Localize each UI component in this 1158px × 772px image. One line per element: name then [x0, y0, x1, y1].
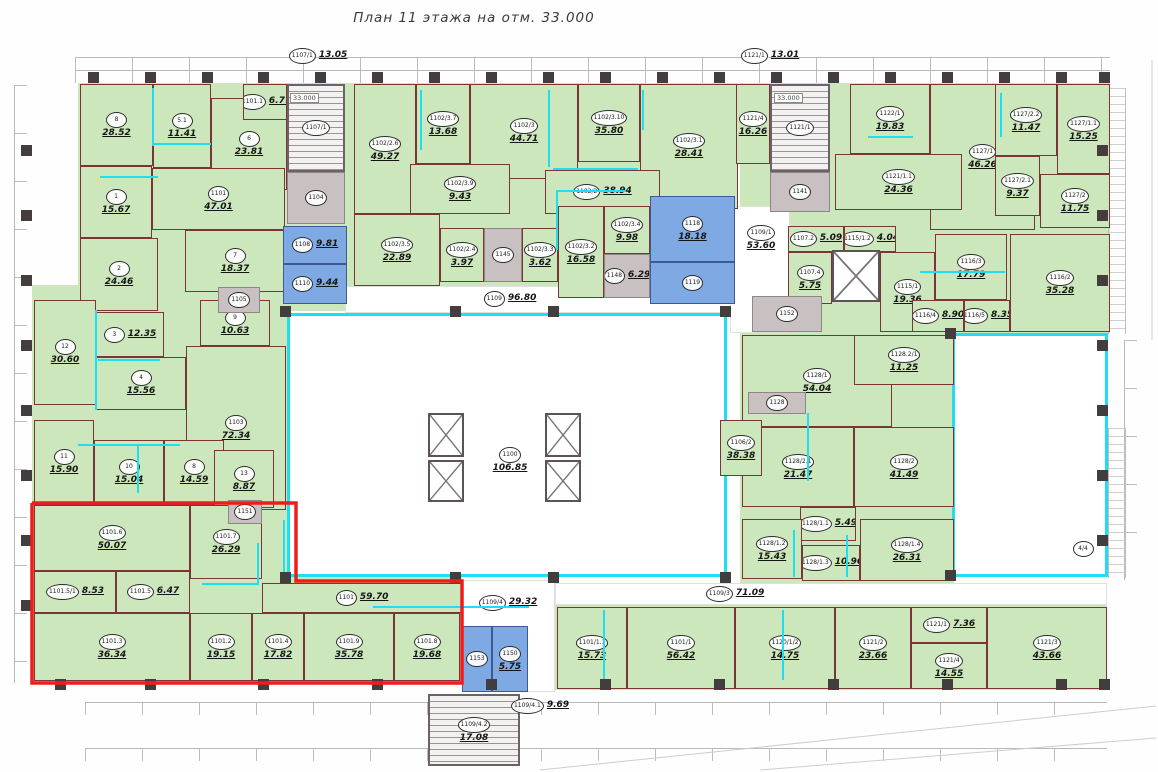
room-area-label: 14.59: [180, 476, 208, 486]
room-1116-3: 1116/3 17.79: [935, 234, 1007, 300]
room-number-badge: 1128/2: [890, 454, 917, 470]
room-area-label: 8.90: [942, 311, 964, 321]
room-area-label: 11.47: [1012, 124, 1040, 134]
room-area-label: 3.97: [451, 259, 473, 269]
partition-line: [153, 143, 211, 145]
room-number-badge: 1128: [766, 395, 787, 411]
room-area-label: 9.44: [316, 279, 338, 289]
room-area-label: 9.43: [449, 193, 471, 203]
elevator-shaft: [428, 460, 464, 502]
room-number-badge: 1101.7: [213, 529, 240, 545]
room-number-badge: 1120/1/2: [769, 635, 802, 651]
partition-line: [202, 583, 258, 585]
partition-line: [373, 606, 529, 608]
room-area-label: 24.46: [105, 278, 133, 288]
room-number-badge: 1102/3.10: [591, 110, 628, 126]
room-1109-3: 1109/3 71.09: [660, 583, 810, 605]
room-1119: 1119: [650, 262, 735, 304]
room-area-label: 72.34: [222, 432, 250, 442]
room-1102-3-10: 1102/3.10 35.80: [578, 84, 640, 162]
column-marker: [372, 72, 383, 83]
room-number-badge: 1102/3.9: [444, 176, 477, 192]
elevator-shaft: [545, 413, 581, 457]
room-number-badge: 1116/5: [964, 308, 988, 324]
room-area-label: 15.43: [758, 553, 786, 563]
room-number-badge: 1102/2: [573, 184, 600, 200]
column-marker: [429, 72, 440, 83]
room-area-label: 12.35: [128, 330, 156, 340]
room-area-label: 22.89: [383, 254, 411, 264]
column-marker: [258, 72, 269, 83]
partition-line: [420, 90, 422, 150]
room-8: 8 28.52: [80, 84, 153, 166]
partition-line: [1000, 93, 1002, 137]
room-number-badge: 1109/4: [479, 595, 506, 611]
partition-line: [642, 90, 644, 130]
room-area-label: 19.15: [207, 651, 235, 661]
room-1109-1: 1109/1 53.60: [732, 214, 790, 262]
column-marker: [1097, 470, 1108, 481]
room-area-label: 44.71: [510, 135, 538, 145]
room-1101-8: 1101.8 19.68: [394, 613, 460, 681]
room-1106-2: 1106/2 38.38: [720, 420, 762, 476]
room-number-badge: 1151: [234, 504, 255, 520]
room-number-badge: 8: [184, 459, 205, 475]
room-number-badge: 6: [239, 131, 260, 147]
room-area-label: 30.60: [51, 356, 79, 366]
column-marker: [945, 328, 956, 339]
partition-line: [603, 610, 605, 680]
column-marker: [657, 72, 668, 83]
room-area-label: 9.81: [316, 240, 338, 250]
room-number-badge: 8: [106, 112, 127, 128]
room-number-badge: 1102/3.3: [524, 242, 557, 258]
room-1102-3-9: 1102/3.9 9.43: [410, 164, 510, 214]
room-area-label: 14.55: [935, 670, 963, 680]
column-marker: [145, 72, 156, 83]
room-area-label: 14.75: [771, 652, 799, 662]
partition-line: [556, 190, 626, 192]
shaft-cross-icon: [834, 252, 878, 300]
room-area-label: 15.90: [50, 466, 78, 476]
room-number-badge: 1102/3.5: [381, 237, 414, 253]
room-number-badge: 4: [131, 370, 152, 386]
room-1121-1: 1121/1 13.01: [730, 44, 810, 68]
room-1109-4: 1109/4 29.32: [462, 583, 554, 623]
room-1107-1: 1107/1 13.05: [278, 44, 358, 68]
room-number-badge: 1121/1.1: [882, 169, 915, 185]
room-1101-1: 1101.1 6.77: [243, 84, 287, 120]
partition-line: [793, 530, 795, 577]
balcony-hatch-top-right: [1108, 88, 1126, 334]
room-number-badge: 1107/1: [302, 120, 329, 136]
column-marker: [202, 72, 213, 83]
room-number-badge: 1127/2: [1061, 188, 1088, 204]
column-marker: [1056, 72, 1067, 83]
room-area-label: 11.75: [1061, 205, 1089, 215]
room-number-badge: 1127/2.2: [1010, 107, 1043, 123]
room-area-label: 24.36: [884, 186, 912, 196]
column-marker: [21, 145, 32, 156]
room-number-badge: 1101.5/1: [46, 584, 79, 600]
shaft-cross-icon: [430, 415, 462, 455]
room-number-badge: 11: [54, 449, 75, 465]
column-marker: [88, 72, 99, 83]
room-area-label: 15.25: [1069, 133, 1097, 143]
column-marker: [942, 679, 953, 690]
room-1128-2: 1128/2 41.49: [854, 427, 954, 507]
room-1110: 1110 9.44: [283, 264, 347, 304]
room-area-label: 71.09: [736, 589, 764, 599]
room-1127-2-2: 1127/2.2 11.47: [995, 84, 1057, 156]
room-number-badge: 1108: [292, 237, 313, 253]
room-1102-2-6: 1102/2.6 49.27: [354, 84, 416, 214]
room-number-badge: 1128.2/1: [888, 347, 921, 363]
room-area-label: 43.66: [1033, 652, 1061, 662]
room-area-label: 13.05: [319, 51, 347, 61]
room-number-badge: 1127/1.1: [1067, 116, 1100, 132]
room-number-badge: 1101.5: [127, 584, 154, 600]
room-1102-3-3: 1102/3.3 3.62: [522, 228, 558, 282]
partition-line: [556, 190, 558, 250]
column-marker: [21, 210, 32, 221]
room-number-badge: 1103: [225, 415, 246, 431]
column-marker: [21, 535, 32, 546]
room-area-label: 26.29: [212, 546, 240, 556]
room-number-badge: 1145: [492, 247, 513, 263]
room-1108: 1108 9.81: [283, 226, 347, 264]
room-area-label: 16.26: [739, 128, 767, 138]
dimension-strip-bottom-2: [85, 748, 1107, 761]
room-number-badge: 1109/1: [747, 225, 774, 241]
room-area-label: 13.01: [771, 51, 799, 61]
room-1101-1-1: 1101/1.1 15.73: [557, 607, 627, 689]
room-number-badge: 1106/2: [727, 435, 754, 451]
room-number-badge: 1102/3.4: [611, 217, 644, 233]
room-area-label: 13.68: [429, 128, 457, 138]
room-number-badge: 1118: [682, 216, 703, 232]
room-number-badge: 13: [234, 466, 255, 482]
room-number-badge: 7: [225, 248, 246, 264]
elevator-shaft: [428, 413, 464, 457]
column-marker: [1097, 275, 1108, 286]
column-marker: [21, 275, 32, 286]
column-marker: [1097, 405, 1108, 416]
room-1101-9: 1101.9 35.78: [304, 613, 394, 681]
room-1101-3: 1101.3 36.34: [34, 613, 190, 681]
column-marker: [548, 306, 559, 317]
room-area-label: 50.07: [98, 542, 126, 552]
room-area-label: 6.77: [269, 97, 287, 107]
room-number-badge: 1102/3.2: [565, 239, 598, 255]
room-area-label: 5.75: [799, 282, 821, 292]
dimension-strip-left: [14, 85, 27, 683]
room-number-badge: 1102/3: [510, 118, 537, 134]
room-1116-5: 1116/5 8.35: [964, 300, 1010, 332]
room-area-label: 23.66: [859, 652, 887, 662]
room-number-badge: 1128/1.2: [756, 536, 789, 552]
room-area-label: 36.34: [98, 651, 126, 661]
room-area-label: 54.04: [803, 385, 831, 395]
room-4-4: 4/4: [1070, 538, 1096, 560]
room-area-label: 10.63: [221, 327, 249, 337]
room-area-label: 28.52: [102, 129, 130, 139]
room-area-label: 106.85: [493, 464, 528, 474]
room-1102-3-2: 1102/3.2 16.58: [558, 206, 604, 298]
room-1116-2: 1116/2 35.28: [1010, 234, 1110, 332]
room-area-label: 18.37: [221, 265, 249, 275]
room-1121-1-1: 1121/1.1 24.36: [835, 154, 962, 210]
room-area-label: 16.58: [567, 256, 595, 266]
room-number-badge: 1153: [466, 651, 487, 667]
room-number-badge: 1101.6: [99, 525, 126, 541]
room-11: 11 15.90: [34, 420, 94, 505]
partition-line: [95, 310, 97, 410]
column-marker: [828, 72, 839, 83]
room-1128-2-1: 1128.2/1 11.25: [854, 335, 954, 385]
room-area-label: 15.73: [578, 652, 606, 662]
shaft-cross-icon: [547, 415, 579, 455]
dimension-strip-top-1: [75, 57, 1110, 70]
room-area-label: 6.47: [157, 587, 179, 597]
room-number-badge: 1152: [776, 306, 797, 322]
room-number-badge: 1115/1: [894, 279, 921, 295]
room-1102-3-7: 1102/3.7 13.68: [416, 84, 470, 164]
room-number-badge: 1116/3: [957, 254, 984, 270]
column-marker: [372, 679, 383, 690]
partition-line: [100, 176, 158, 178]
room-1152: 1152: [752, 296, 822, 332]
room-1101-5-1: 1101.5/1 8.53: [34, 571, 116, 613]
room-1121-4: 1121/4 16.26: [736, 84, 770, 164]
room-1100: 1100 106.85: [465, 432, 555, 488]
room-area-label: 15.67: [102, 206, 130, 216]
room-number-badge: 1128/1.1: [800, 516, 832, 532]
room-1101-1: 1101/1 56.42: [627, 607, 735, 689]
room-area-label: 47.01: [204, 203, 232, 213]
room-area-label: 17.82: [264, 651, 292, 661]
room-area-label: 8.53: [82, 587, 104, 597]
column-marker: [771, 72, 782, 83]
room-number-badge: 1115/1.2: [844, 231, 874, 247]
room-number-badge: 1109: [484, 291, 505, 307]
room-number-badge: 1101.2: [208, 634, 235, 650]
room-area-label: 28.41: [675, 150, 703, 160]
column-marker: [1056, 679, 1067, 690]
room-area-label: 11.25: [890, 364, 918, 374]
partition-line: [283, 520, 285, 576]
column-marker: [548, 572, 559, 583]
room-1104: 1104: [287, 172, 345, 224]
room-1121-2: 1121/2 23.66: [835, 607, 911, 689]
partition-line: [920, 271, 1005, 273]
column-marker: [21, 340, 32, 351]
balcony-hatch-bottom-right: [1108, 428, 1126, 578]
room-area-label: 8.35: [991, 311, 1010, 321]
column-marker: [600, 679, 611, 690]
room-number-badge: 5.1: [172, 113, 193, 129]
room-number-badge: 1102/3.7: [427, 111, 460, 127]
room-number-badge: 1100: [499, 447, 520, 463]
room-3: 3 12.35: [96, 312, 164, 357]
room-area-label: 3.62: [529, 259, 551, 269]
room-number-badge: 1127/2.1: [1001, 173, 1034, 189]
room-area-label: 38.38: [727, 452, 755, 462]
room-area-label: 18.18: [678, 233, 706, 243]
room-1102-3-4: 1102/3.4 9.98: [604, 206, 650, 254]
column-marker: [999, 72, 1010, 83]
room-area-label: 5.09: [820, 234, 842, 244]
room-number-badge: 1128/1: [803, 368, 830, 384]
room-number-badge: 1121/4: [739, 111, 766, 127]
column-marker: [1097, 210, 1108, 221]
room-number-badge: 1121/1: [923, 617, 950, 633]
column-marker: [21, 600, 32, 611]
dimension-strip-bottom-1: [85, 702, 1107, 715]
room-number-badge: 1101: [336, 590, 357, 606]
room-number-badge: 1110: [292, 276, 313, 292]
room-1121-1: 1121/1 7.36: [911, 607, 987, 643]
column-marker: [885, 72, 896, 83]
room-1150: 1150 5.75: [492, 626, 528, 692]
room-number-badge: 1101.3: [99, 634, 126, 650]
room-number-badge: 1107.2: [790, 231, 817, 247]
room-number-badge: 1127/1: [969, 144, 996, 160]
room-area-label: 59.70: [360, 593, 388, 603]
column-marker: [714, 679, 725, 690]
room-number-badge: 1: [106, 189, 127, 205]
room-area-label: 19.83: [876, 123, 904, 133]
room-10: 10 15.04: [94, 440, 164, 505]
partition-line: [257, 543, 259, 585]
partition-line: [152, 88, 154, 146]
room-number-badge: 1101.9: [336, 634, 363, 650]
partition-line: [868, 136, 913, 138]
column-marker: [945, 570, 956, 581]
elevation-mark: 33.000: [774, 93, 803, 103]
column-marker: [828, 679, 839, 690]
room-number-badge: 1107/1: [289, 48, 316, 64]
column-marker: [1099, 72, 1110, 83]
partition-line: [137, 445, 139, 493]
room-7: 7 18.37: [185, 230, 285, 292]
room-1127-2-1: 1127/2.1 9.37: [995, 156, 1040, 216]
room-5-1: 5.1 11.41: [153, 84, 211, 168]
room-1105: 1105: [218, 287, 260, 313]
column-marker: [450, 572, 461, 583]
shaft-cross-icon: [547, 462, 579, 500]
room-number-badge: 1102/2.6: [369, 136, 402, 152]
room-1118: 1118 18.18: [650, 196, 735, 262]
room-number-badge: 1102/2.4: [446, 242, 479, 258]
room-area-label: 6.29: [628, 271, 650, 281]
room-1128-1-4: 1128/1.4 26.31: [860, 519, 954, 581]
room-1101: 1101 59.70: [262, 583, 462, 613]
room-number-badge: 1116/2: [1046, 270, 1073, 286]
room-area-label: 35.78: [335, 651, 363, 661]
room-area-label: 17.08: [460, 734, 488, 744]
room-area-label: 46.26: [968, 161, 996, 171]
room-1122-1: 1122/1 19.83: [850, 84, 930, 154]
room-number-badge: 1101.8: [414, 634, 441, 650]
floor-plan-page: План 11 этажа на отм. 33.000 8 28.52 5.1…: [0, 0, 1158, 772]
partition-line: [553, 168, 638, 170]
partition-line: [782, 610, 784, 680]
room-1109: 1109 96.80: [440, 286, 580, 312]
partition-line: [98, 359, 160, 361]
column-marker: [280, 572, 291, 583]
room-number-badge: 1116/4: [912, 308, 939, 324]
room-1115-1-2: 1115/1.2 4.04: [844, 226, 896, 252]
room-area-label: 35.80: [595, 127, 623, 137]
room-1116-4: 1116/4 8.90: [912, 300, 964, 332]
room-area-label: 49.27: [371, 153, 399, 163]
column-marker: [1097, 340, 1108, 351]
corridor-void: [555, 583, 1107, 605]
room-number-badge: 12: [55, 339, 76, 355]
room-number-badge: 1121/2: [859, 635, 886, 651]
column-marker: [714, 72, 725, 83]
room-number-badge: 1128/1.3: [802, 555, 832, 571]
room-number-badge: 1101: [208, 186, 229, 202]
room-1120-1-2: 1120/1/2 14.75: [735, 607, 835, 689]
room-area-label: 96.80: [508, 294, 536, 304]
column-marker: [1097, 535, 1108, 546]
column-marker: [1097, 145, 1108, 156]
room-1151: 1151: [228, 500, 262, 524]
room-1101-2: 1101.2 19.15: [190, 613, 252, 681]
room-1127-1-1: 1127/1.1 15.25: [1057, 84, 1110, 174]
room-number-badge: 1121/3: [1033, 635, 1060, 651]
elevation-mark: 33.000: [290, 93, 319, 103]
room-number-badge: 1101.1: [243, 94, 266, 110]
room-number-badge: 1121/1: [786, 120, 813, 136]
column-marker: [258, 679, 269, 690]
room-number-badge: 1121/4: [935, 653, 962, 669]
room-1109-4-1: 1109/4.1 9.69: [500, 694, 580, 718]
room-number-badge: 1122/1: [876, 106, 903, 122]
partition-line: [78, 444, 180, 446]
elevator-shaft: [832, 250, 880, 302]
column-marker: [600, 72, 611, 83]
column-marker: [720, 306, 731, 317]
room-number-badge: 1109/4.1: [511, 698, 544, 714]
room-1101-5: 1101.5 6.47: [116, 571, 190, 613]
room-number-badge: 1104: [305, 190, 326, 206]
room-area-label: 56.42: [667, 652, 695, 662]
column-marker: [280, 306, 291, 317]
room-number-badge: 1148: [604, 268, 625, 284]
column-marker: [21, 470, 32, 481]
column-marker: [21, 405, 32, 416]
room-number-badge: 1109/3: [706, 586, 733, 602]
room-number-badge: 1121/1: [741, 48, 768, 64]
room-area-label: 11.41: [168, 130, 196, 140]
plan-canvas: 8 28.52 5.1 11.41 6 23.81 1101.1 6.77 11…: [0, 0, 1158, 772]
room-number-badge: 1128/1.4: [891, 537, 924, 553]
room-number-badge: 1150: [499, 646, 520, 662]
column-marker: [145, 679, 156, 690]
room-area-label: 35.28: [1046, 287, 1074, 297]
room-1128-1-3: 1128/1.3 10.96: [802, 545, 860, 581]
room-area-label: 9.69: [547, 701, 569, 711]
room-area-label: 7.36: [953, 620, 975, 630]
room-number-badge: 1107.4: [797, 265, 824, 281]
room-number-badge: 1102/3.1: [673, 133, 706, 149]
room-area-label: 41.49: [890, 471, 918, 481]
room-area-label: 9.98: [616, 234, 638, 244]
elevator-shaft: [545, 460, 581, 502]
